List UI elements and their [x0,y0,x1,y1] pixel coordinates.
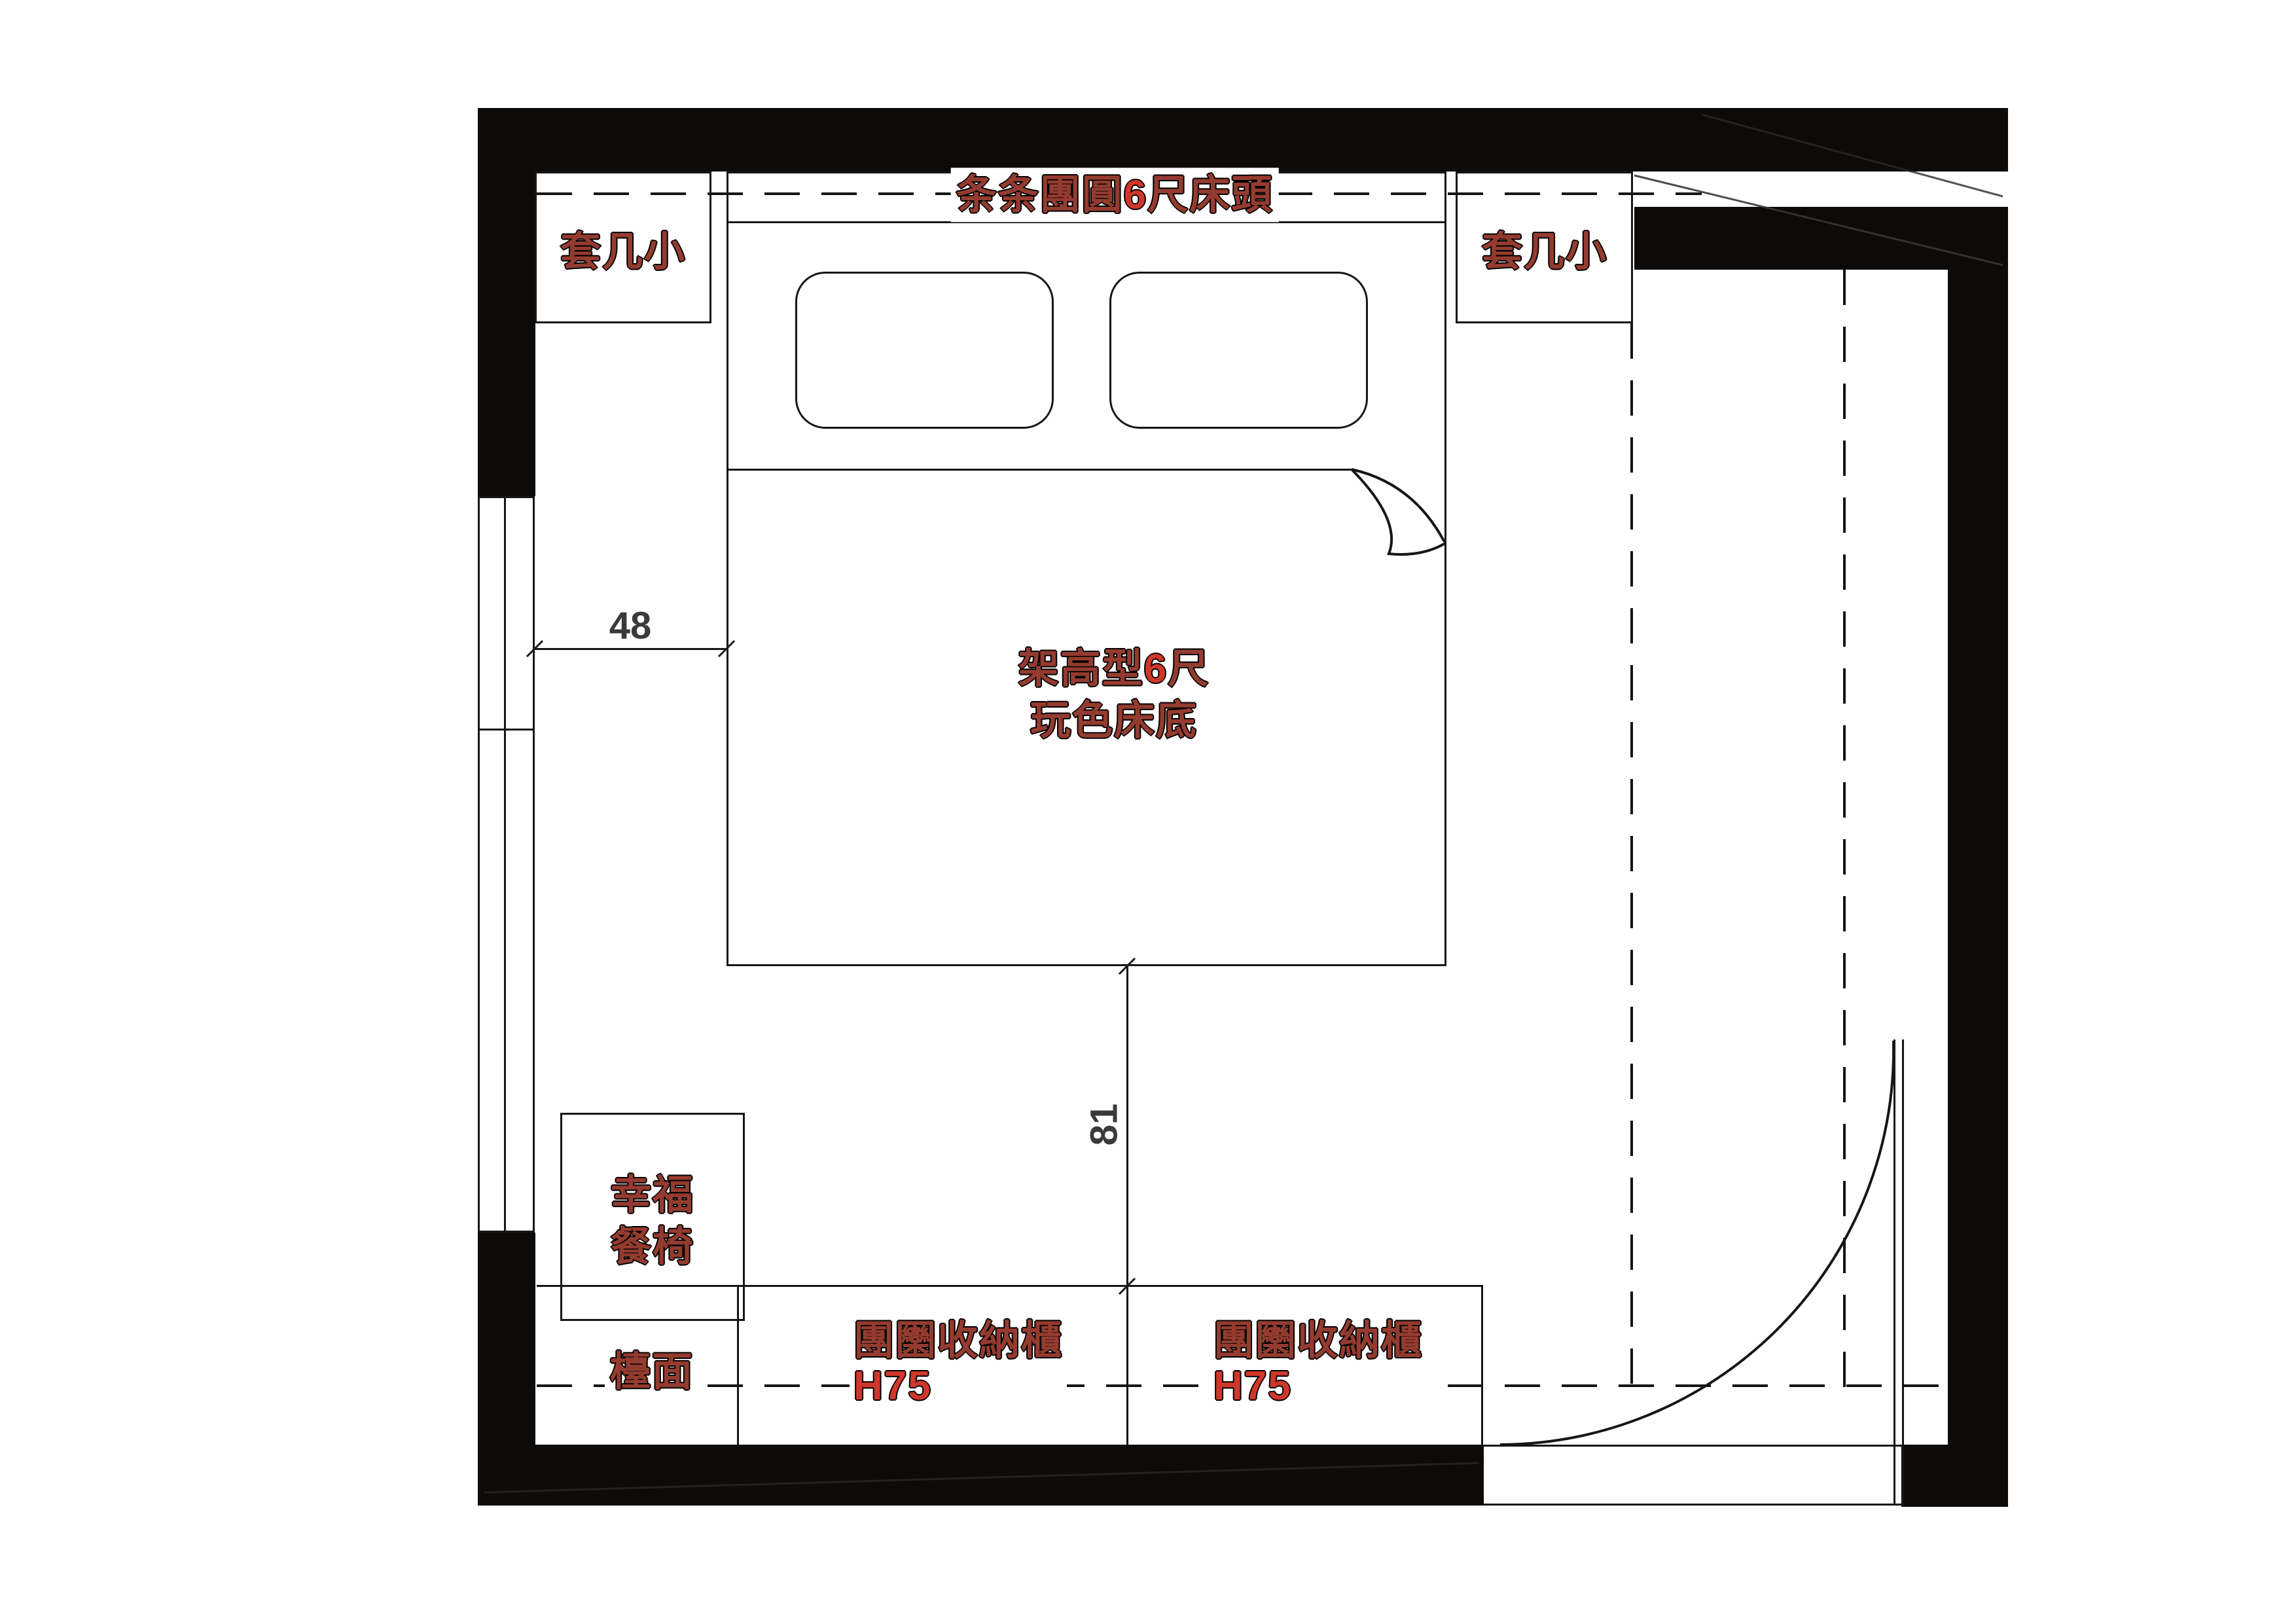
floor-plan-canvas: 48 81 条条團圓6尺床頭 套几小 套几小 架高型6尺 玩色床底 幸福 餐椅 … [0,0,2296,1624]
bed-label: 架高型6尺 玩色床底 [1013,642,1215,749]
wall-hatch-diagonal-1 [1634,175,2003,265]
headboard-title-prefix: 条条團圓 [956,172,1124,217]
bed-label-line1-suffix: 尺 [1168,647,1210,692]
bed-label-line1-prefix: 架高型 [1018,647,1144,692]
wall-hatch-diagonal-bottom [484,1463,1479,1492]
cabinet-left-height: H75 [853,1363,932,1409]
chair-label-line1: 幸福 [611,1173,694,1218]
cabinet-right-name: 團圞收納櫃 [1213,1318,1423,1363]
cabinet-left-name: 團圞收納櫃 [853,1318,1063,1363]
cabinet-right-height: H75 [1213,1363,1292,1409]
headboard-title-suffix: 尺床頭 [1147,172,1273,217]
bed-label-line1-number: 6 [1144,647,1168,692]
cabinet-left-label: 團圞收納櫃 H75 [850,1317,1067,1411]
chair-label-line2: 餐椅 [611,1225,694,1270]
chair-label: 幸福 餐椅 [605,1168,700,1275]
duvet-fold-curl [1352,469,1445,554]
headboard-title: 条条團圓6尺床頭 [951,168,1279,222]
wall-hatch-diagonal-2 [1702,115,2003,196]
plan-curves-overlay [0,0,2296,1624]
door-swing-arc [1500,1041,1893,1445]
counter-label: 檯面 [605,1344,699,1399]
headboard-title-number: 6 [1124,172,1147,217]
side-table-right-label: 套几小 [1477,225,1613,279]
cabinet-right-label: 團圞收納櫃 H75 [1210,1317,1427,1411]
bed-label-line2: 玩色床底 [1030,698,1198,744]
side-table-left-label: 套几小 [555,225,691,279]
